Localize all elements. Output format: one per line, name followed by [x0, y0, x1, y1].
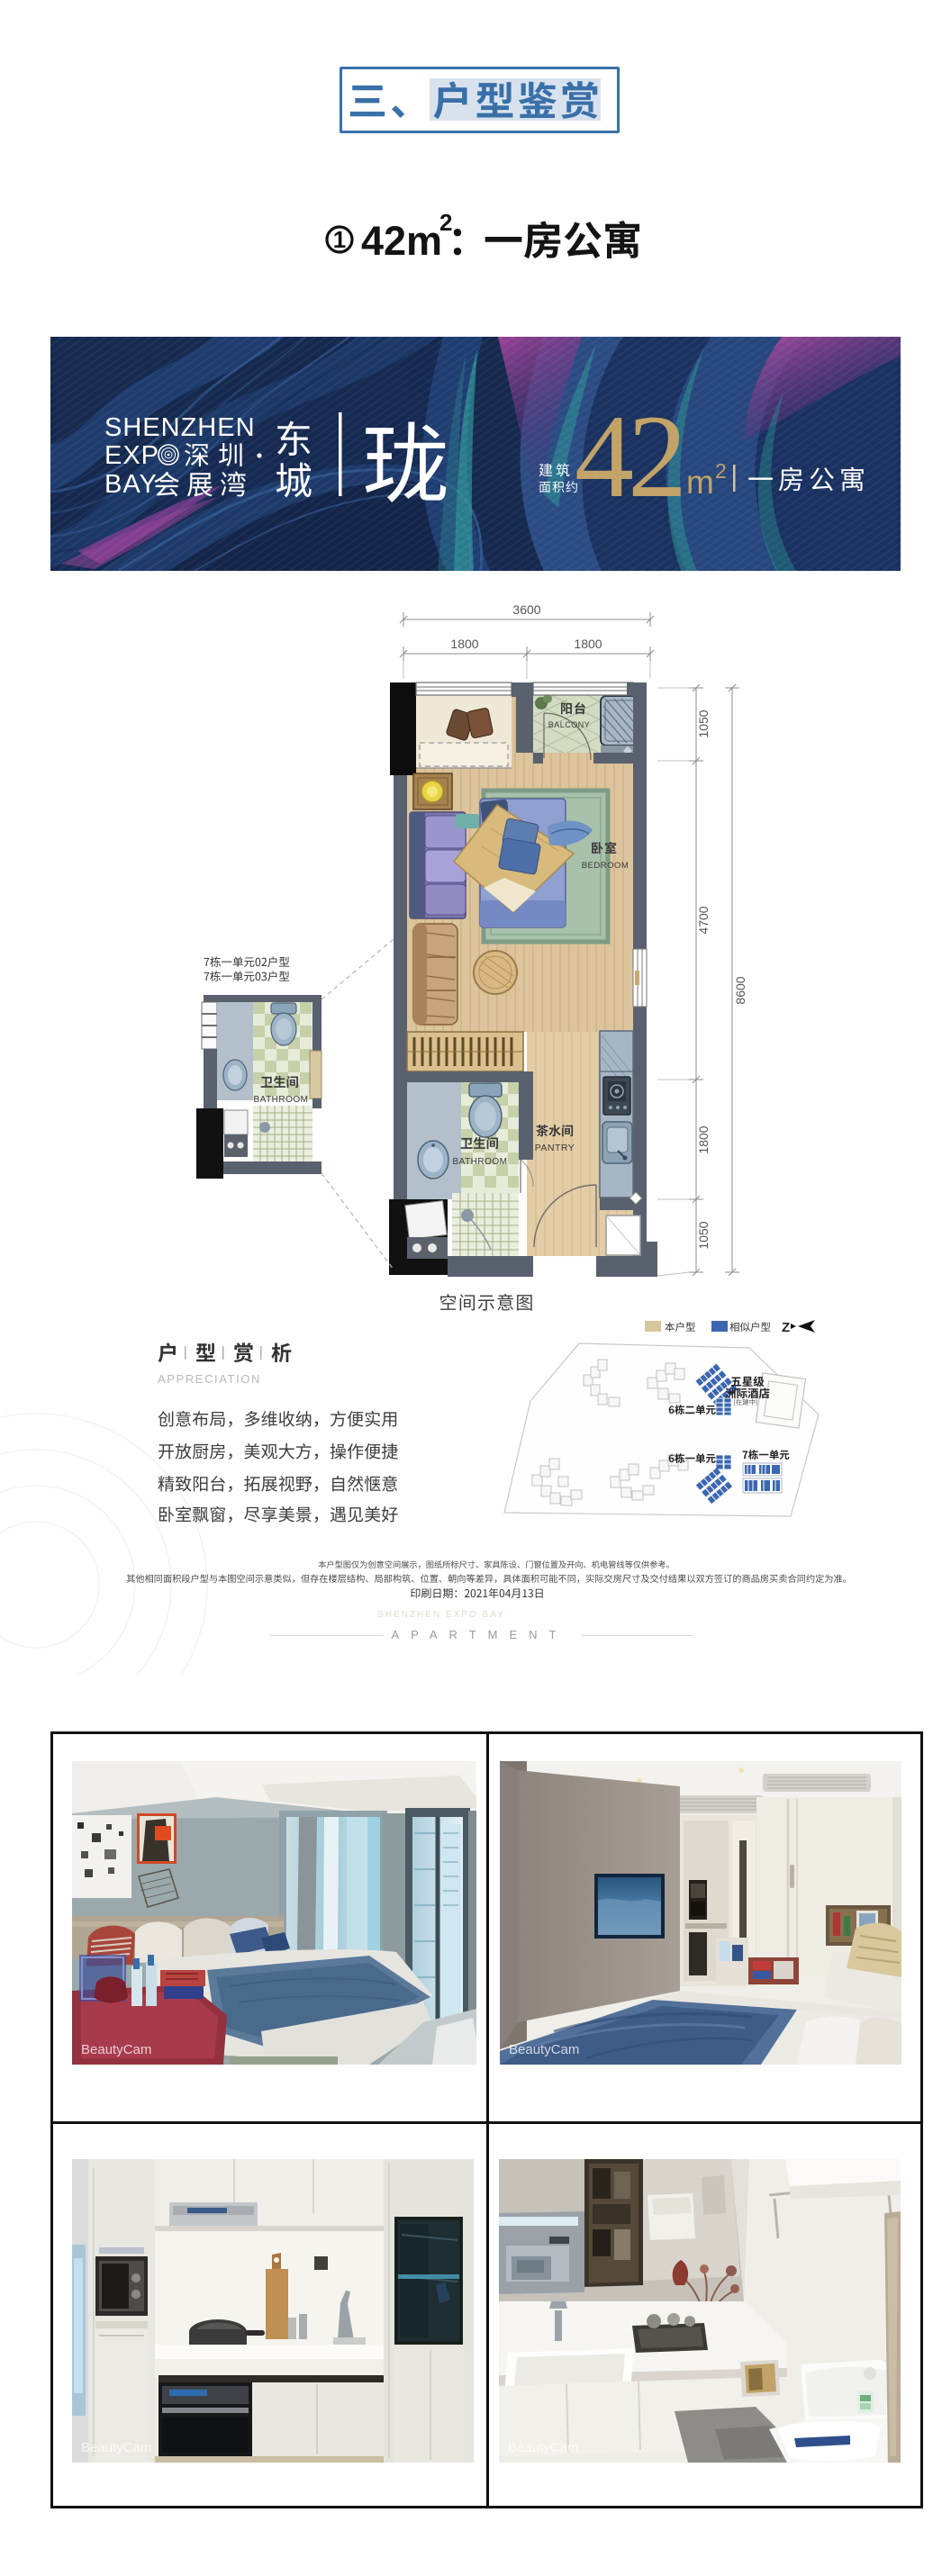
svg-text:2: 2	[439, 209, 452, 236]
svg-text:BALCONY: BALCONY	[548, 720, 591, 729]
svg-text:1: 1	[333, 226, 346, 253]
svg-text:BATHROOM: BATHROOM	[253, 1095, 308, 1105]
svg-text:PANTRY: PANTRY	[535, 1143, 575, 1153]
svg-text:42m: 42m	[361, 218, 442, 264]
svg-text:BEDROOM: BEDROOM	[582, 861, 629, 871]
svg-text:BATHROOM: BATHROOM	[452, 1157, 507, 1167]
